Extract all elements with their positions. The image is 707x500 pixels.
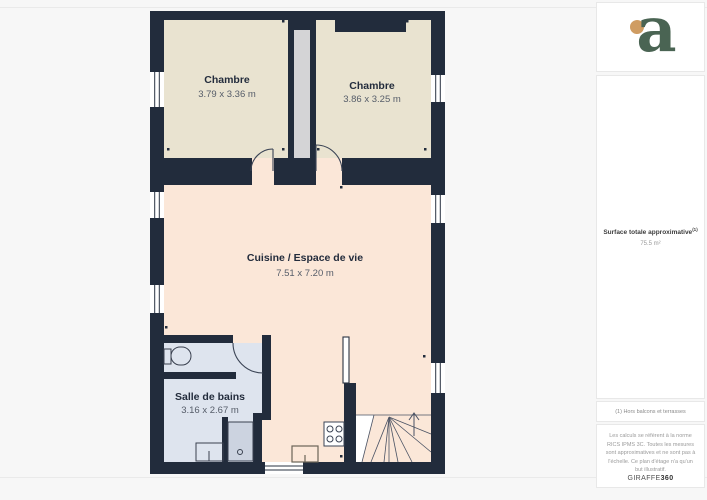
wall-bathroom-right-upper — [262, 335, 271, 420]
logo-card: a — [596, 2, 705, 72]
room-label: Chambre — [204, 74, 250, 86]
brand-logo: a — [597, 3, 704, 71]
room-label: Cuisine / Espace de vie — [247, 252, 363, 264]
opening-chambre-1 — [252, 158, 274, 185]
room-label: Salle de bains — [175, 391, 245, 403]
window — [431, 75, 445, 102]
footnote-card: (1) Hors balcons et terrasses — [596, 401, 705, 422]
wall-chimney-notch — [335, 11, 406, 32]
window — [431, 363, 445, 393]
wall-bathroom-partition — [164, 372, 236, 379]
wall-bathroom-right-lower — [253, 413, 262, 462]
giraffe360-logo: GIRAFFE360 — [605, 475, 696, 482]
wall-bathroom-top — [150, 335, 233, 343]
surface-card: Surface totale approximative(1) 75.5 m² — [596, 75, 705, 399]
wall-middle — [150, 158, 445, 185]
surface-note-ref: (1) — [692, 227, 698, 232]
logo-letter: a — [636, 2, 676, 65]
surface-label-text: Surface totale approximative — [603, 230, 692, 237]
legal-card: Les calculs se réfèrent à la norme RICS … — [596, 424, 705, 488]
brand-name: GIRAFFE — [627, 475, 660, 482]
footnote-text: (1) Hors balcons et terrasses — [615, 409, 686, 415]
window — [431, 195, 445, 223]
window — [150, 72, 164, 107]
room-label: Chambre — [349, 80, 395, 92]
surface-total-label: Surface totale approximative(1) — [603, 227, 697, 236]
opening-chambre-2 — [316, 158, 342, 185]
window — [150, 192, 164, 218]
wall-kitchen-stairs — [344, 383, 356, 462]
legal-text: Les calculs se réfèrent à la norme RICS … — [605, 432, 696, 475]
duct-shaft — [294, 30, 310, 158]
room-dimensions: 3.16 x 2.67 m — [181, 405, 239, 416]
door-leaf-kitchen — [343, 337, 349, 383]
shower — [228, 422, 253, 461]
surface-total-value: 75.5 m² — [640, 241, 660, 247]
entry-opening — [265, 462, 303, 474]
room-dimensions: 3.79 x 3.36 m — [198, 89, 256, 100]
brand-suffix: 360 — [661, 475, 674, 482]
window — [150, 285, 164, 313]
stove — [324, 422, 344, 446]
room-dimensions: 3.86 x 3.25 m — [343, 94, 401, 105]
room-dimensions: 7.51 x 7.20 m — [276, 268, 334, 279]
info-sidebar: a Surface totale approximative(1) 75.5 m… — [596, 0, 707, 500]
